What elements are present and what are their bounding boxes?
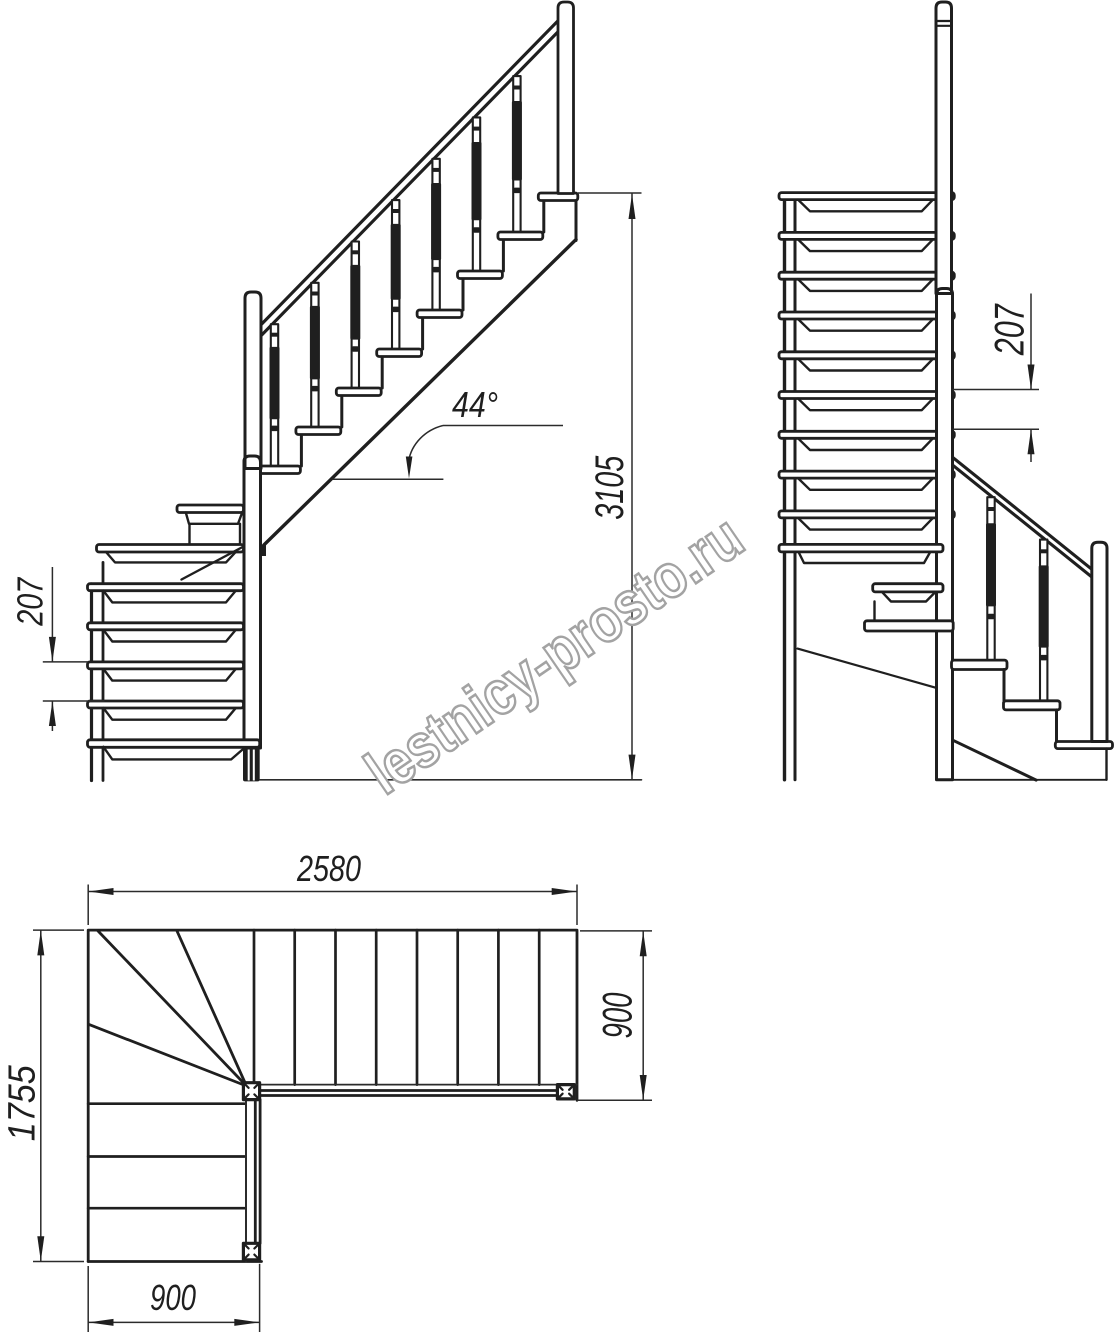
svg-text:1755: 1755: [2, 1065, 44, 1142]
svg-text:3105: 3105: [588, 455, 632, 520]
svg-text:207: 207: [985, 303, 1032, 356]
svg-text:2580: 2580: [296, 848, 361, 889]
svg-text:207: 207: [10, 576, 51, 626]
svg-text:900: 900: [150, 1277, 196, 1318]
svg-text:900: 900: [594, 992, 641, 1038]
svg-text:44°: 44°: [452, 384, 498, 425]
